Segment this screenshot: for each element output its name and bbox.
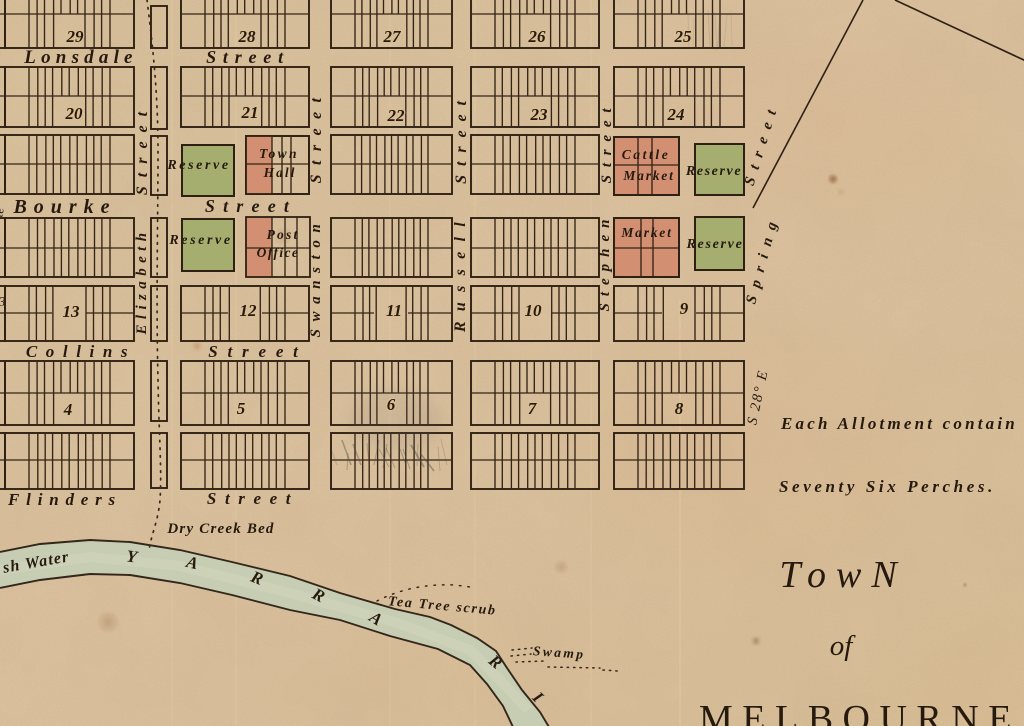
svg-text:Office: Office xyxy=(257,245,300,260)
svg-text:3: 3 xyxy=(0,295,6,310)
svg-text:29: 29 xyxy=(66,27,85,46)
svg-text:Stephen: Stephen xyxy=(597,212,613,311)
svg-text:24: 24 xyxy=(667,105,685,124)
svg-text:25: 25 xyxy=(674,27,693,46)
svg-text:Post: Post xyxy=(267,227,300,242)
svg-text:Market: Market xyxy=(622,168,674,183)
svg-text:27: 27 xyxy=(383,27,403,46)
svg-text:MELBOURNE: MELBOURNE xyxy=(699,698,1021,726)
svg-text:Reserve: Reserve xyxy=(166,158,230,173)
svg-text:Cattle: Cattle xyxy=(622,147,671,162)
svg-text:8: 8 xyxy=(675,399,684,418)
svg-text:TowN: TowN xyxy=(779,554,906,596)
svg-text:21: 21 xyxy=(241,103,259,122)
svg-text:Bourke: Bourke xyxy=(12,196,116,218)
svg-text:Street: Street xyxy=(134,103,151,195)
svg-text:Swanston: Swanston xyxy=(308,217,324,338)
svg-text:5: 5 xyxy=(237,399,246,418)
svg-text:Street: Street xyxy=(453,92,470,184)
svg-text:Hall: Hall xyxy=(263,165,297,180)
svg-text:Street: Street xyxy=(207,489,299,508)
svg-text:Street: Street xyxy=(599,101,615,184)
svg-text:Flinders: Flinders xyxy=(7,490,122,509)
svg-text:13: 13 xyxy=(63,302,81,321)
svg-text:of: of xyxy=(830,630,857,662)
svg-text:22: 22 xyxy=(387,106,406,125)
svg-text:Street: Street xyxy=(206,47,290,67)
svg-text:10: 10 xyxy=(525,301,543,320)
svg-text:28: 28 xyxy=(238,27,257,46)
svg-text:23: 23 xyxy=(530,105,549,124)
svg-text:Lonsdale: Lonsdale xyxy=(23,47,137,68)
svg-text:11: 11 xyxy=(386,301,402,320)
svg-text:Russell: Russell xyxy=(452,212,469,333)
svg-text:Seventy Six Perches.: Seventy Six Perches. xyxy=(779,477,996,496)
svg-text:Elizabeth: Elizabeth xyxy=(134,228,150,336)
svg-text:Each Allotment contain: Each Allotment contain xyxy=(780,414,1018,433)
svg-text:Street: Street xyxy=(205,196,297,216)
svg-text:9: 9 xyxy=(680,299,689,318)
svg-text:Street: Street xyxy=(208,342,307,361)
svg-text:Reserve: Reserve xyxy=(685,164,742,179)
svg-text:Reserve: Reserve xyxy=(168,233,232,248)
svg-text:Collins: Collins xyxy=(26,342,136,361)
svg-text:12: 12 xyxy=(240,301,258,320)
svg-text:20: 20 xyxy=(65,104,84,123)
svg-text:Street: Street xyxy=(308,89,325,184)
svg-text:26: 26 xyxy=(528,27,547,46)
svg-text:Reserve: Reserve xyxy=(686,237,744,252)
svg-text:6: 6 xyxy=(387,395,396,414)
svg-text:Market: Market xyxy=(620,225,672,240)
svg-text:4: 4 xyxy=(63,400,73,419)
svg-text:Dry Creek Bed: Dry Creek Bed xyxy=(166,521,274,537)
svg-text:Town: Town xyxy=(259,146,299,161)
